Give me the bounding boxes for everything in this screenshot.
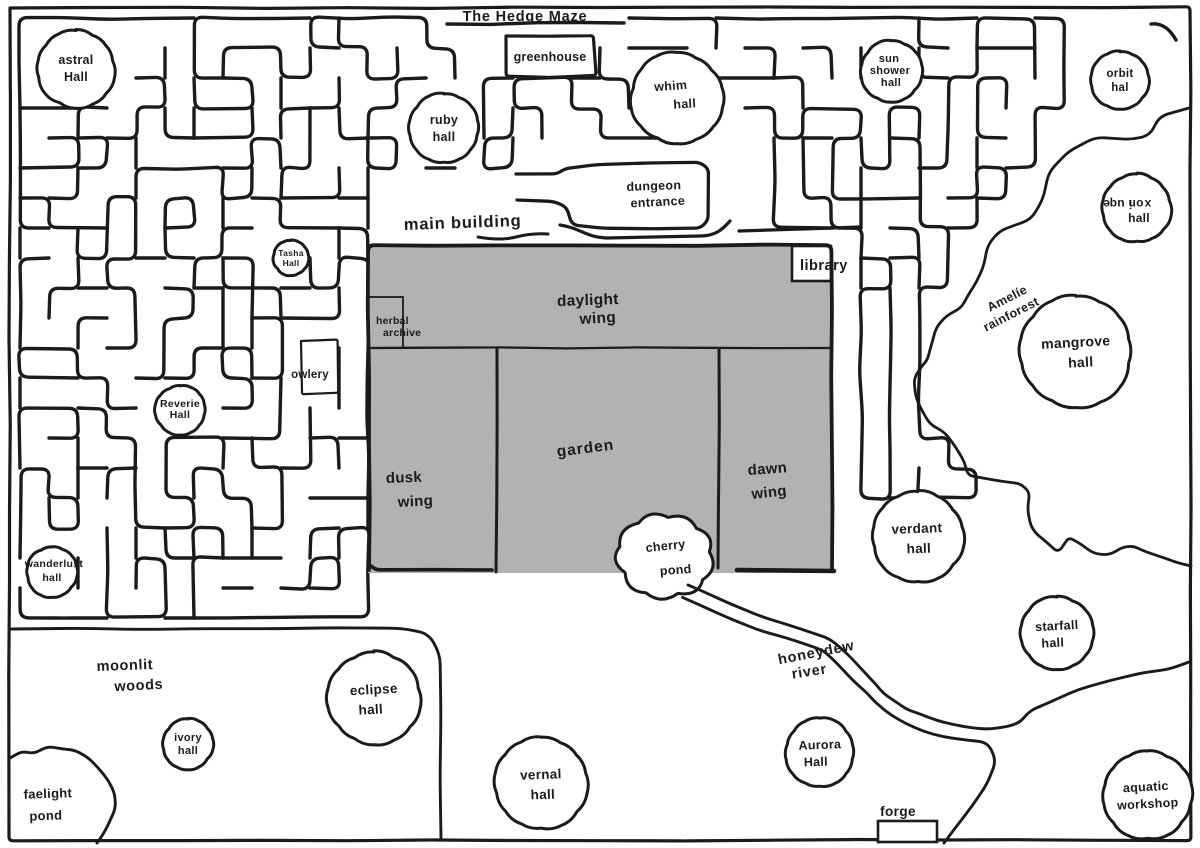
svg-text:Hall: Hall bbox=[170, 409, 190, 421]
svg-text:verdant: verdant bbox=[891, 520, 943, 537]
svg-text:wing: wing bbox=[578, 309, 616, 328]
svg-text:owlery: owlery bbox=[291, 369, 329, 381]
svg-text:aquatic: aquatic bbox=[1123, 779, 1170, 795]
svg-text:faelight: faelight bbox=[23, 785, 72, 802]
svg-text:dawn: dawn bbox=[747, 459, 788, 479]
svg-text:hall: hall bbox=[1128, 211, 1150, 225]
svg-text:entrance: entrance bbox=[630, 194, 685, 211]
svg-text:hall: hall bbox=[881, 77, 901, 89]
svg-text:sun: sun bbox=[879, 53, 899, 65]
svg-text:moonlit: moonlit bbox=[96, 657, 153, 675]
svg-text:library: library bbox=[800, 258, 848, 274]
svg-text:hall: hall bbox=[1068, 353, 1094, 370]
svg-text:Tasha: Tasha bbox=[278, 248, 303, 258]
svg-text:dusk: dusk bbox=[386, 469, 423, 487]
svg-text:woods: woods bbox=[113, 677, 164, 696]
svg-text:archive: archive bbox=[383, 327, 421, 339]
svg-text:hall: hall bbox=[358, 701, 383, 717]
svg-text:shower: shower bbox=[870, 65, 911, 77]
svg-text:wing: wing bbox=[396, 492, 433, 511]
svg-text:Hall: Hall bbox=[283, 258, 300, 268]
svg-text:astral: astral bbox=[58, 53, 93, 67]
svg-text:Hall: Hall bbox=[64, 70, 88, 84]
svg-text:Hall: Hall bbox=[804, 755, 829, 770]
svg-text:orbit: orbit bbox=[1106, 68, 1133, 80]
svg-text:greenhouse: greenhouse bbox=[514, 50, 587, 64]
svg-text:wanderlust: wanderlust bbox=[24, 558, 84, 570]
svg-text:pond: pond bbox=[29, 807, 62, 823]
svg-text:pond: pond bbox=[659, 562, 692, 578]
svg-text:hal: hal bbox=[1111, 82, 1129, 94]
svg-text:daylight: daylight bbox=[557, 291, 619, 310]
svg-text:vernal: vernal bbox=[520, 766, 562, 782]
svg-text:Aurora: Aurora bbox=[798, 737, 842, 753]
svg-text:hall: hall bbox=[433, 130, 456, 144]
svg-text:forge: forge bbox=[880, 804, 916, 819]
svg-text:hall: hall bbox=[1041, 635, 1064, 650]
svg-text:whim: whim bbox=[653, 78, 688, 94]
svg-text:hall: hall bbox=[42, 572, 61, 584]
svg-text:hall: hall bbox=[906, 541, 931, 557]
svg-text:hall: hall bbox=[178, 745, 198, 757]
svg-text:starfall: starfall bbox=[1035, 618, 1079, 634]
svg-text:herbal: herbal bbox=[376, 315, 409, 327]
svg-text:eclipse: eclipse bbox=[349, 681, 398, 698]
svg-text:hall: hall bbox=[673, 96, 697, 112]
svg-text:ruby: ruby bbox=[430, 113, 458, 127]
svg-text:hall: hall bbox=[530, 787, 555, 803]
svg-text:ivory: ivory bbox=[174, 732, 202, 744]
svg-text:dungeon: dungeon bbox=[626, 178, 681, 194]
